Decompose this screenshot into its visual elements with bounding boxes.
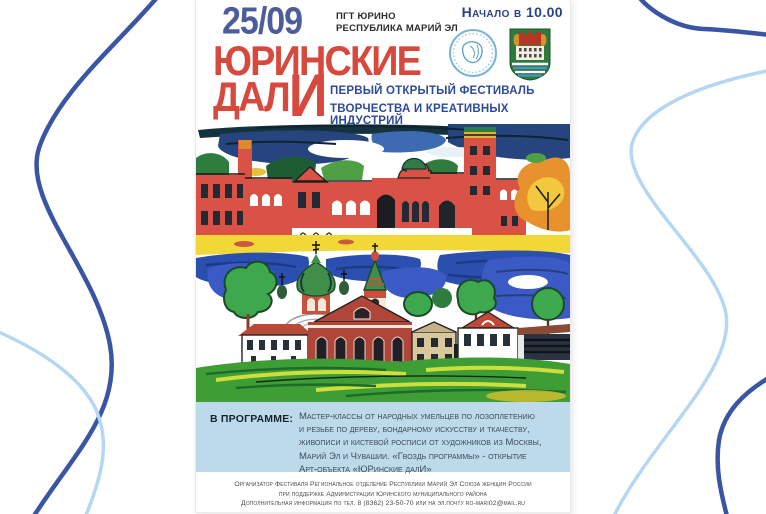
- program-text: Мастер-классы от народных умельцев по ло…: [299, 410, 561, 476]
- organizer-info: Организатор Фестиваля Региональное отдел…: [196, 480, 570, 509]
- curve-bottomright-dark: [718, 376, 766, 514]
- organizer-line1: Организатор Фестиваля Региональное отдел…: [196, 480, 570, 490]
- program-line: Мастер-классы от народных умельцев по ло…: [299, 410, 561, 423]
- location-line1: ПГТ ЮРИНО: [336, 11, 458, 23]
- curve-topright-dark: [634, 0, 766, 35]
- curve-left-dark: [30, 0, 160, 514]
- organizer-line3: Дополнительная информация по тел. 8 (836…: [196, 499, 570, 509]
- program-line: и резьбе по дереву, бондарному искусству…: [299, 423, 561, 436]
- program-label: В ПРОГРАММЕ:: [210, 413, 293, 425]
- start-time: Начало в 10.00: [462, 4, 563, 20]
- event-location: ПГТ ЮРИНО РЕСПУБЛИКА МАРИЙ ЭЛ: [336, 11, 458, 34]
- program-line: Марий Эл и Чувашии. «Гвоздь программы» -…: [299, 450, 561, 463]
- title-line2-emphasis: И: [289, 62, 326, 129]
- festival-title-line2: ДАЛИ: [213, 76, 326, 118]
- page: 25/09 ПГТ ЮРИНО РЕСПУБЛИКА МАРИЙ ЭЛ Нача…: [0, 0, 766, 514]
- curve-right-light: [612, 70, 766, 514]
- program-line: Арт-объекта «ЮРинские далИ»: [299, 463, 561, 476]
- yurino-coat-of-arms-icon: [508, 27, 552, 81]
- festival-subtitle-line1: ПЕРВЫЙ ОТКРЫТЫЙ ФЕСТИВАЛЬ: [330, 85, 535, 97]
- program-section: В ПРОГРАММЕ: Мастер-классы от народных у…: [196, 402, 570, 472]
- program-line: живописи и кистевой росписи от художнико…: [299, 436, 561, 449]
- location-line2: РЕСПУБЛИКА МАРИЙ ЭЛ: [336, 23, 458, 35]
- poster-illustration: [196, 122, 570, 402]
- round-union-emblem-icon: [448, 28, 498, 78]
- event-date: 25/09: [222, 2, 302, 40]
- festival-poster: 25/09 ПГТ ЮРИНО РЕСПУБЛИКА МАРИЙ ЭЛ Нача…: [196, 0, 570, 512]
- organizer-line2: при поддержке Администрации Юринского му…: [196, 490, 570, 500]
- title-line2-prefix: ДАЛ: [213, 73, 289, 120]
